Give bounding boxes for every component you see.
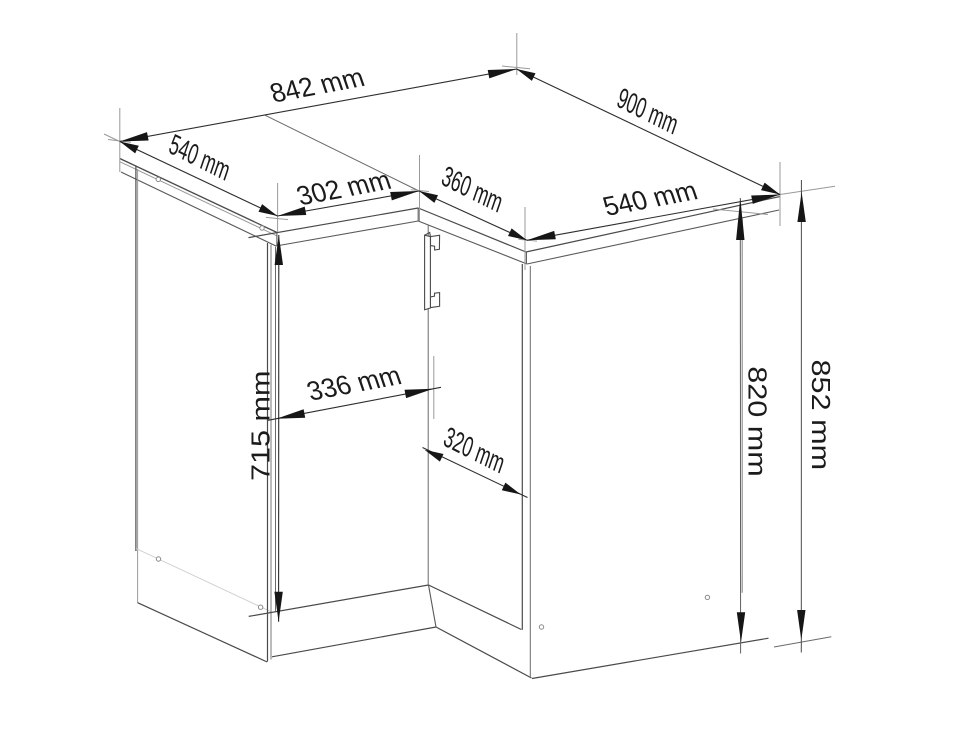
svg-text:820 mm: 820 mm <box>743 366 771 477</box>
svg-text:715 mm: 715 mm <box>247 371 275 482</box>
svg-text:852 mm: 852 mm <box>806 360 834 471</box>
